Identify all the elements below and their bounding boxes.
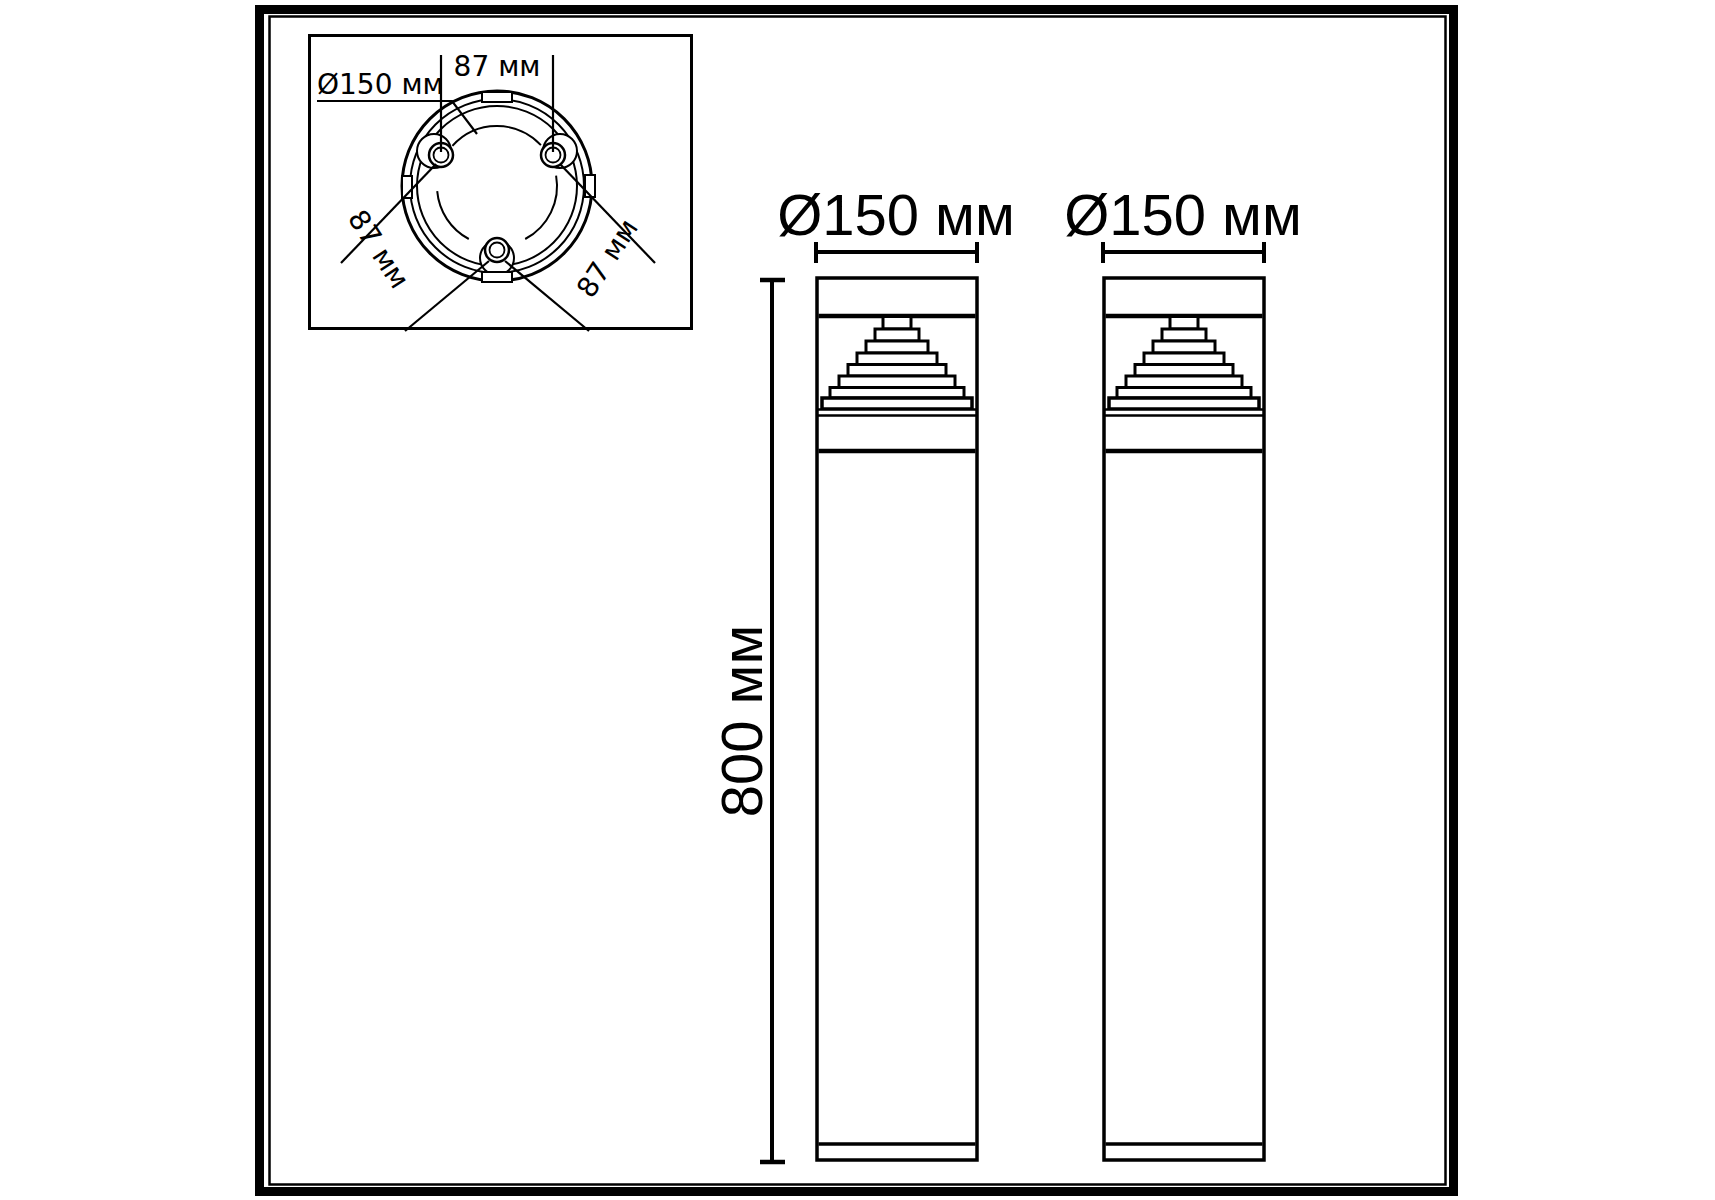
top-view-spacing-left-label: 87 мм [341, 204, 416, 295]
drawing-canvas: Ø150 мм 87 мм 87 мм 87 мм Ø150 мм [0, 0, 1715, 1200]
cable-slot-south [482, 272, 512, 282]
mounting-hole [485, 238, 509, 262]
bollard-1-diameter-dimension: Ø150 мм [777, 182, 1015, 263]
mounting-plate-top-view [402, 91, 595, 282]
bollard-2-diameter-label: Ø150 мм [1064, 182, 1302, 247]
top-view-inset: Ø150 мм 87 мм 87 мм 87 мм [310, 36, 692, 332]
bollard-2-diameter-dimension: Ø150 мм [1064, 182, 1302, 263]
bollard-1-diameter-label: Ø150 мм [777, 182, 1015, 247]
bollard-front-view-1: Ø150 мм [777, 182, 1015, 1160]
spacing-extension-line [405, 261, 489, 331]
top-view-spacing-top-label: 87 мм [454, 50, 541, 83]
bollard-2-drawing [1104, 278, 1264, 1160]
bollard-1-drawing [817, 278, 977, 1160]
spacing-extension-line [505, 261, 589, 331]
bollard-front-view-2: Ø150 мм [1064, 182, 1302, 1160]
height-label: 800 мм [709, 625, 774, 818]
cable-slot-north [482, 92, 512, 102]
mounting-hole-inner [490, 243, 505, 258]
height-dimension: 800 мм [709, 280, 785, 1162]
top-view-diameter-label: Ø150 мм [317, 68, 444, 101]
